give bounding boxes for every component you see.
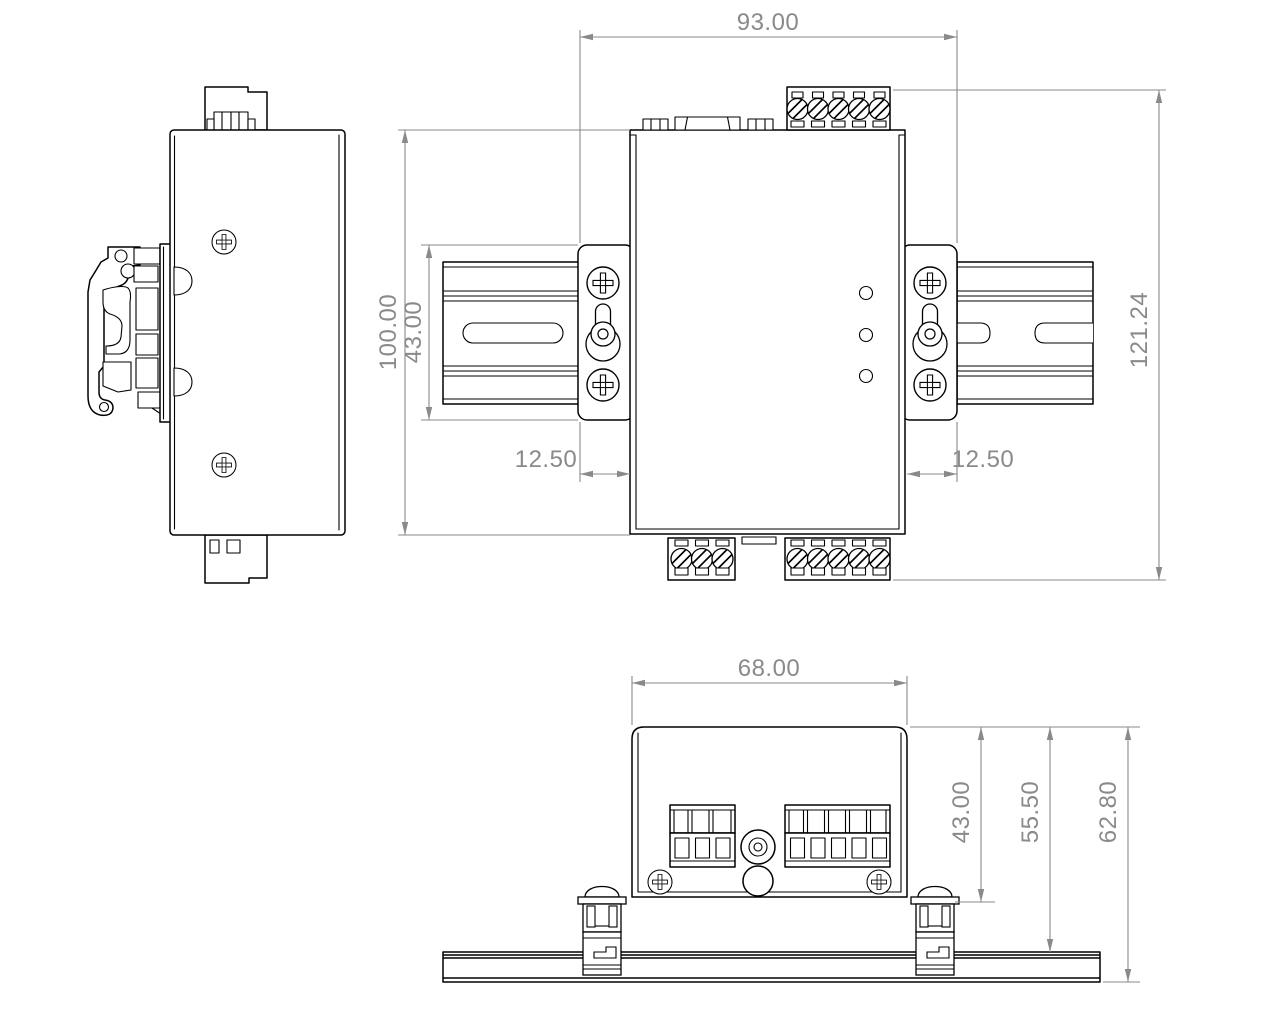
- bottom-block-5pos: [785, 805, 890, 867]
- din-rail-device-drawing: 93.00 100.00 43.00 12.50 12.50 121.24 68…: [0, 0, 1280, 1024]
- dim-bracket-offset-left: 12.50: [515, 446, 578, 473]
- led-indicator: [860, 287, 873, 300]
- din-rail-right: [957, 262, 1093, 404]
- side-bottom-terminal: [205, 535, 267, 583]
- rail-slot: [957, 323, 990, 343]
- bracket-screw: [587, 369, 619, 401]
- side-body: [170, 130, 345, 535]
- rail-clip: [578, 887, 626, 976]
- bracket-screw: [587, 267, 619, 299]
- ground-screw: [741, 830, 775, 864]
- bracket-right: [901, 245, 957, 420]
- dim-front-overall-width: 93.00: [737, 9, 800, 36]
- bracket-left: [578, 245, 634, 420]
- cover-screw: [212, 230, 236, 254]
- dim-bottom-body-width: 68.00: [738, 655, 801, 682]
- dim-bottom-depth-to-rail-top: 55.50: [1017, 781, 1044, 844]
- rail-slot: [1035, 323, 1093, 343]
- dim-bottom-body-depth: 43.00: [948, 781, 975, 844]
- dim-front-overall-height: 121.24: [1126, 292, 1153, 368]
- led-indicator: [860, 329, 873, 342]
- bottom-edge-nub: [742, 537, 776, 544]
- dsub-connector: [675, 117, 740, 130]
- terminal-block-bottom-3pos: [668, 538, 735, 580]
- dim-bracket-offset-right: 12.50: [952, 446, 1015, 473]
- din-rail-left: [443, 262, 580, 404]
- terminal-block-top-5pos: [787, 87, 890, 130]
- dim-front-body-height: 100.00: [375, 294, 402, 370]
- front-view: [443, 87, 1093, 580]
- bottom-view: [443, 727, 1100, 982]
- cover-screw: [212, 453, 236, 477]
- engineering-drawing-page: 93.00 100.00 43.00 12.50 12.50 121.24 68…: [0, 0, 1280, 1024]
- side-view: [88, 87, 345, 583]
- dim-front-bracket-height: 43.00: [400, 301, 427, 364]
- case-hole: [743, 866, 773, 896]
- din-rail-bottom: [443, 952, 1100, 982]
- bracket-screw: [914, 267, 946, 299]
- dim-bottom-overall-depth: 62.80: [1095, 781, 1122, 844]
- side-top-terminal: [205, 87, 267, 130]
- bottom-block-3pos: [670, 805, 735, 867]
- led-indicator: [860, 370, 873, 383]
- rail-cross-section: [134, 244, 172, 422]
- rail-clip: [911, 887, 959, 976]
- din-clip-profile: [88, 247, 140, 415]
- case-screw: [648, 870, 672, 894]
- terminal-block-bottom-5pos: [785, 538, 890, 580]
- bracket-screw: [914, 369, 946, 401]
- case-screw: [867, 870, 891, 894]
- rail-slot: [463, 323, 563, 343]
